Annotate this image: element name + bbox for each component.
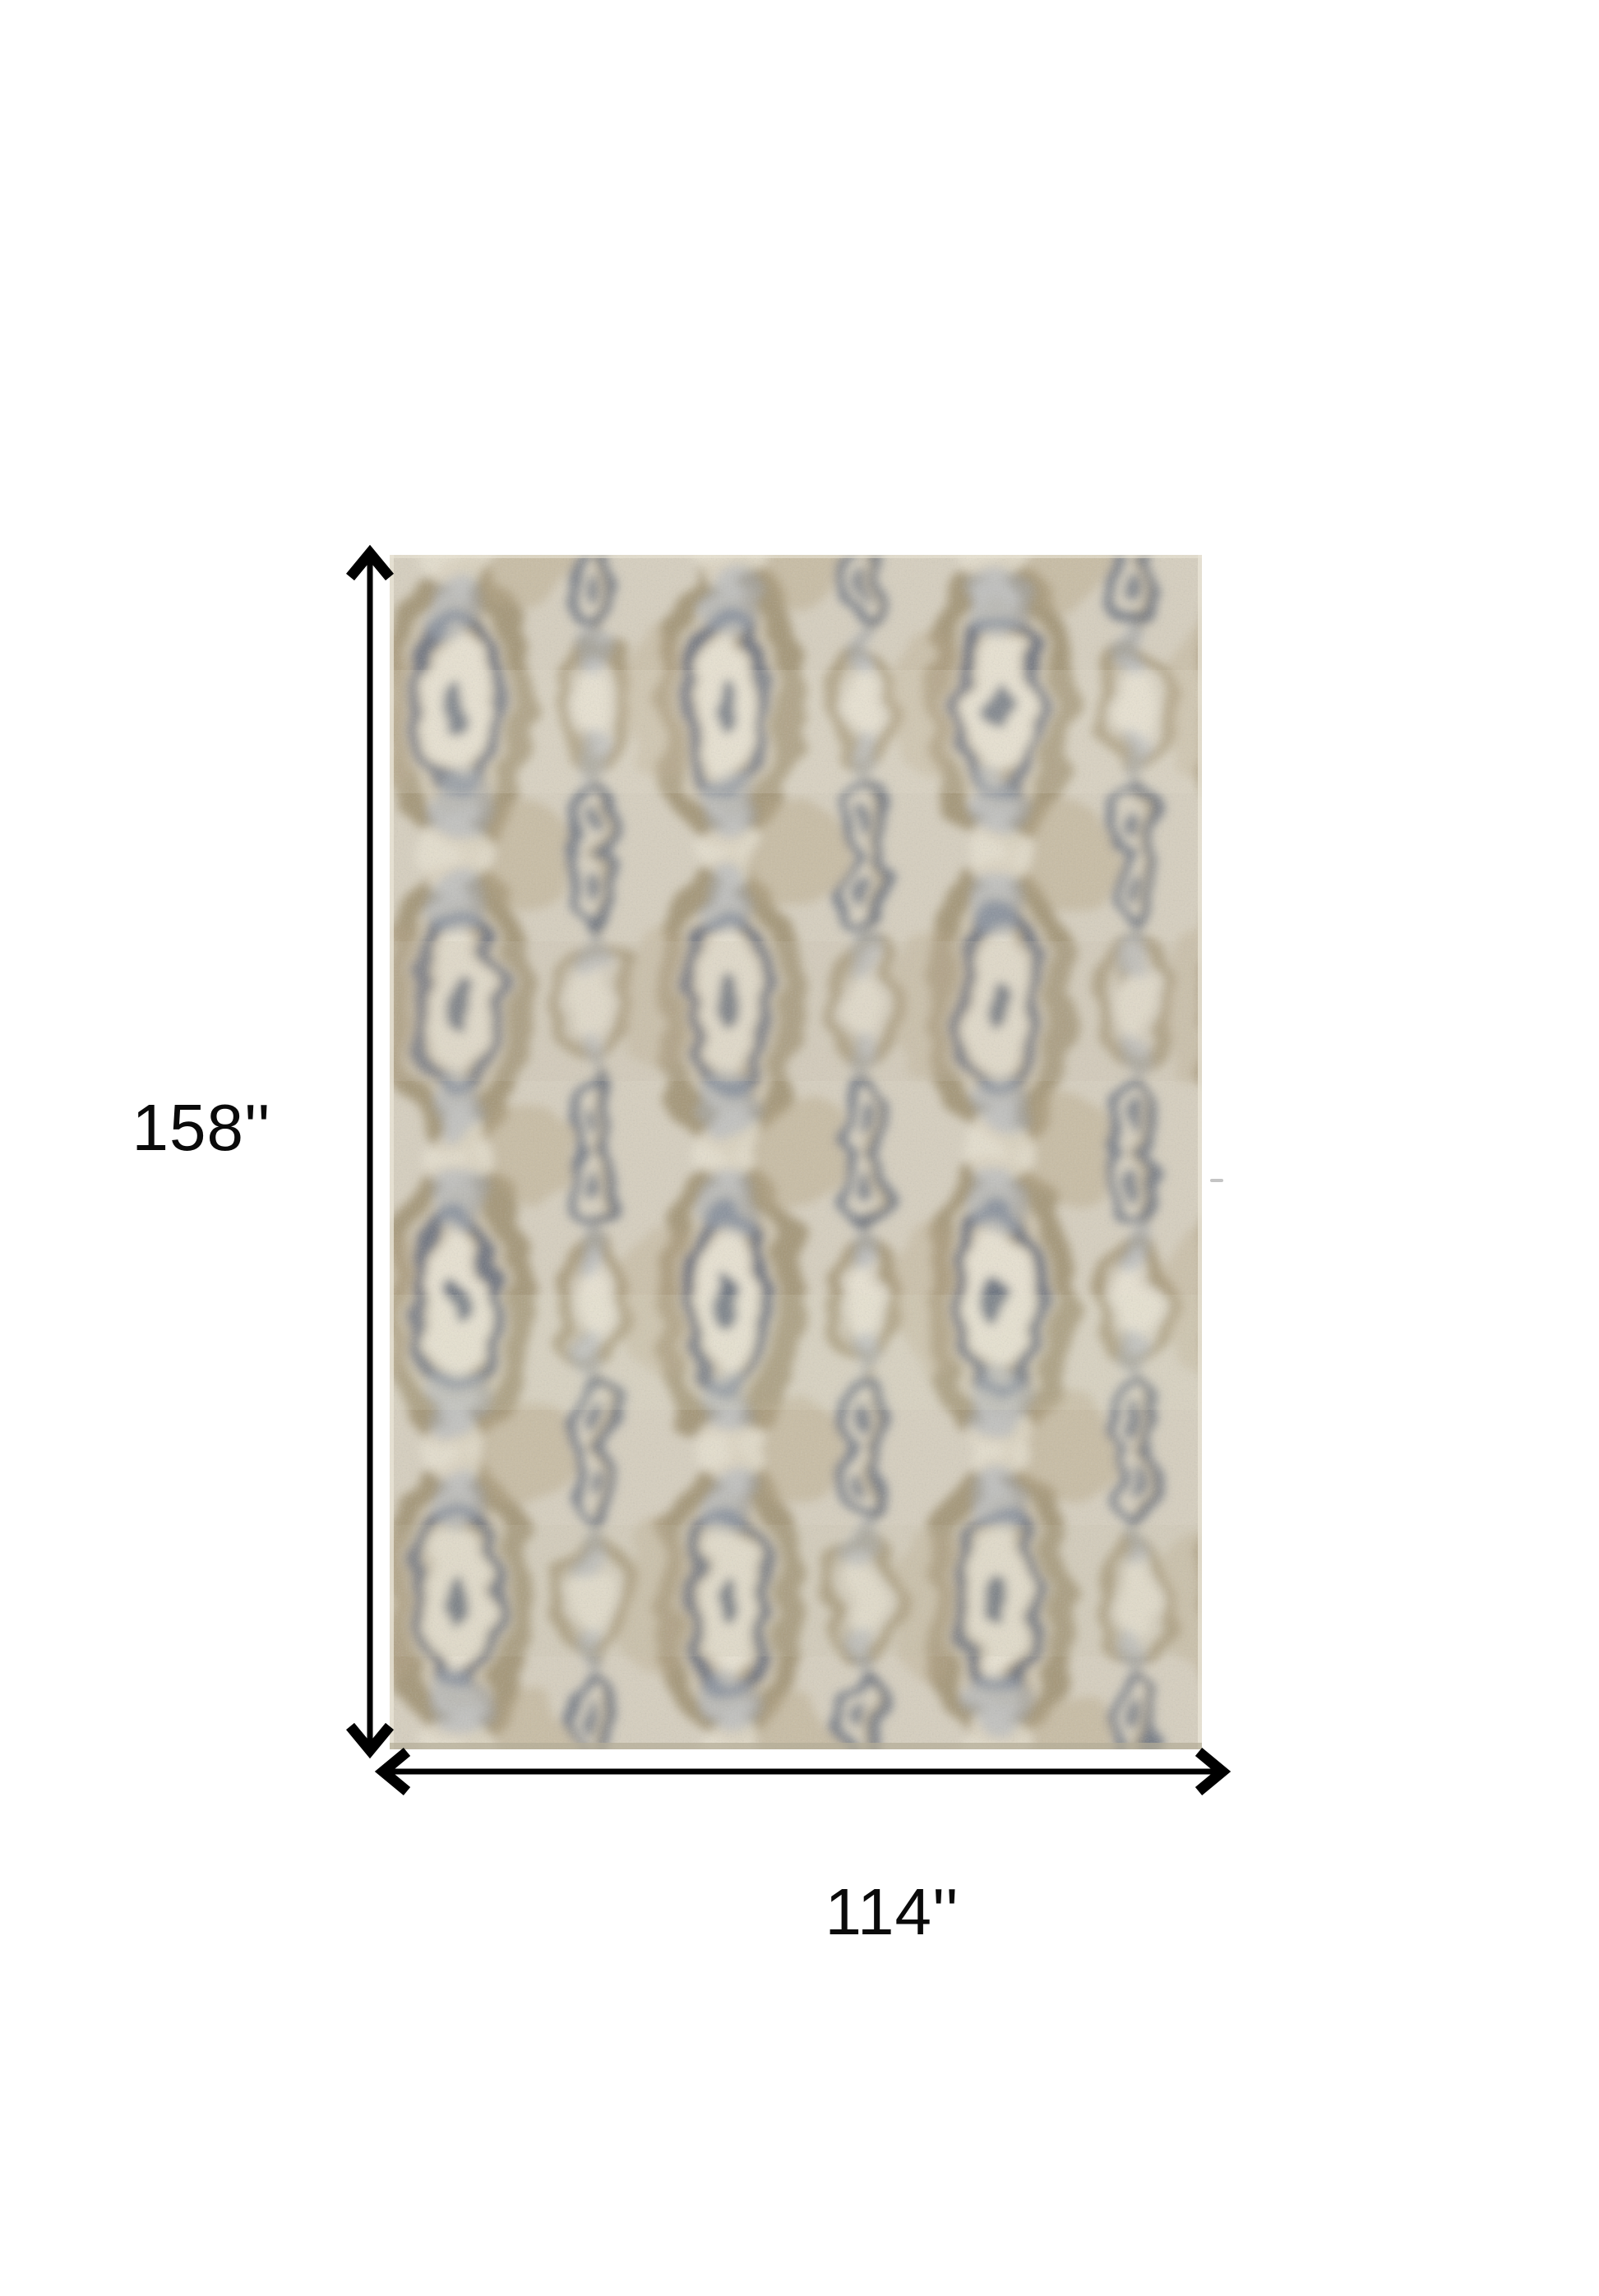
width-dimension-label: 114'' — [825, 1874, 959, 1950]
rug-graphic — [390, 555, 1202, 1749]
right-arrowhead-icon — [1199, 1752, 1222, 1791]
height-dimension-label: 158'' — [132, 1090, 270, 1166]
stray-mark — [1210, 1179, 1223, 1182]
rug-image — [390, 555, 1202, 1749]
down-arrowhead-icon — [350, 1726, 390, 1750]
rug-grain-texture — [390, 555, 1202, 1749]
width-arrow — [383, 1752, 1222, 1791]
up-arrowhead-icon — [350, 553, 390, 577]
height-arrow — [350, 553, 390, 1750]
left-arrowhead-icon — [383, 1752, 407, 1791]
product-dimension-diagram: 158'' 114'' — [0, 0, 1599, 2296]
